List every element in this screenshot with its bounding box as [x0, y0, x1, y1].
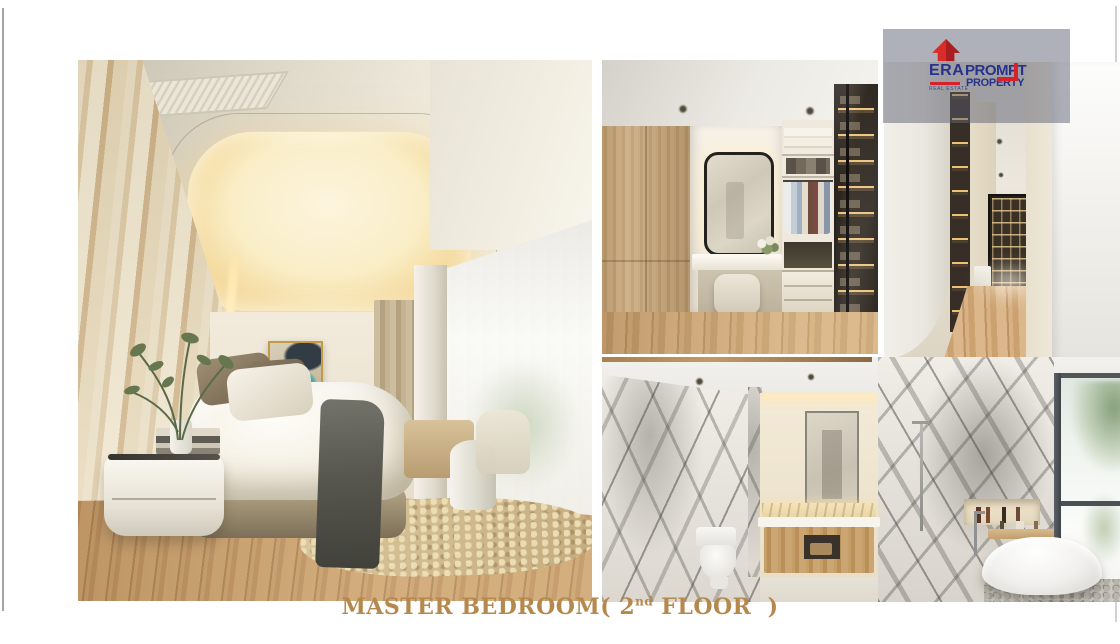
logo-era-underline	[930, 82, 960, 85]
logo-real-estate-text: REAL ESTATE	[929, 86, 969, 92]
hanging-clothes	[784, 182, 832, 234]
window-frame	[1061, 501, 1120, 506]
era-prompt-property-logo: ERA REAL ESTATE PROMPT PROPERTY	[883, 29, 1070, 123]
bathroom-marble-wall-left	[602, 365, 760, 602]
closet-spotlight	[678, 104, 688, 114]
corridor-spotlight	[998, 172, 1004, 178]
closet-open-shelving	[782, 120, 834, 312]
page-background: { "caption": { "part1": "MASTER BEDROOM(…	[0, 0, 1120, 644]
corridor-spotlight	[996, 138, 1003, 145]
bathroom-mirror	[805, 411, 859, 511]
toilet-tank	[696, 527, 736, 547]
cabinet-basket	[810, 543, 832, 555]
wardrobe-seam	[602, 260, 690, 262]
bedroom-armchair	[476, 410, 530, 474]
vanity-wood-cabinet	[764, 527, 874, 573]
vanity-stool	[714, 274, 760, 314]
photo-walk-in-closet	[602, 60, 878, 354]
photo-master-bedroom	[78, 60, 592, 601]
shelf-edge	[782, 176, 834, 178]
wardrobe-seam	[645, 126, 647, 312]
toilet-base	[710, 577, 728, 589]
vanity-flowers	[754, 234, 780, 258]
bedroom-ceiling-right	[430, 60, 592, 250]
caption-text: FLOOR )	[661, 594, 778, 620]
era-house-icon	[931, 39, 961, 63]
window-frame	[1054, 373, 1120, 378]
toilet-bowl	[700, 545, 736, 579]
slide-caption: MASTER BEDROOM( 2ndFLOOR )	[0, 594, 1120, 620]
freestanding-bathtub	[982, 537, 1102, 595]
bathroom-spotlight	[807, 373, 815, 381]
cabinet-open-shelf	[804, 535, 840, 559]
logo-era-text: ERA	[929, 62, 964, 80]
shower-rail	[920, 423, 923, 531]
logo-red-bracket-horizontal	[997, 77, 1018, 81]
backlit-counter-strip	[762, 503, 876, 517]
folded-linens	[784, 128, 832, 154]
shelf-dark-bay	[784, 242, 832, 268]
closet-drawers	[782, 270, 834, 314]
closet-spotlight	[805, 106, 815, 116]
bedroom-plant	[108, 322, 248, 442]
bedroom-column	[414, 265, 447, 520]
bathroom-spotlight	[695, 377, 704, 386]
bathtub-faucet	[974, 511, 977, 555]
caption-text: MASTER BEDROOM( 2	[341, 594, 635, 620]
bathtub-faucet-spout	[974, 511, 985, 514]
bed-throw-blanket	[315, 399, 385, 569]
closet-wood-floor	[602, 312, 878, 354]
bedroom-nightstand	[104, 454, 224, 536]
caption-superscript: nd	[635, 595, 653, 609]
photo-master-bathroom	[602, 357, 1120, 602]
shower-head	[912, 421, 930, 424]
shelf-edge	[782, 154, 834, 156]
vanity-cove-light	[762, 393, 876, 409]
vanity-countertop	[758, 517, 880, 527]
window-greenery	[1072, 381, 1120, 471]
bathroom-top-wood-strip	[602, 357, 872, 362]
page-left-border	[2, 8, 4, 611]
folded-clothes	[786, 158, 830, 174]
